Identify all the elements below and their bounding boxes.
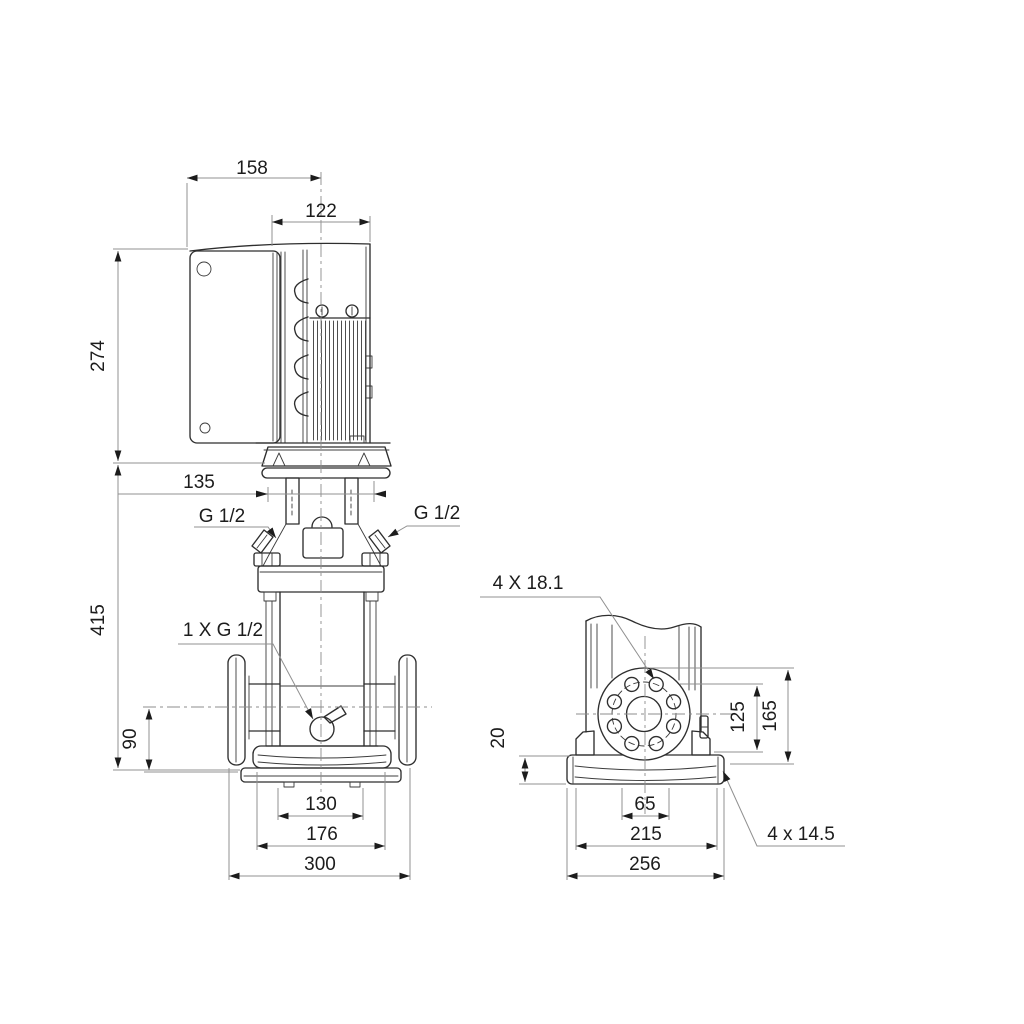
dim-274-label: 274 bbox=[88, 340, 109, 372]
front-view: 158 122 274 415 135 90 130 176 bbox=[88, 158, 460, 880]
dim-256-label: 256 bbox=[629, 854, 661, 875]
hex-nut-left bbox=[254, 553, 280, 566]
foot-right bbox=[692, 731, 710, 755]
base-holes-label: 4 x 14.5 bbox=[767, 824, 835, 845]
dim-125-label: 125 bbox=[728, 701, 749, 733]
pump-body-front bbox=[228, 592, 416, 765]
drawing-page: 158 122 274 415 135 90 130 176 bbox=[0, 0, 1024, 1024]
heatsink bbox=[310, 305, 372, 443]
port-flange-right bbox=[399, 655, 416, 765]
drain-plug bbox=[310, 717, 334, 741]
coupling-guard-left bbox=[286, 478, 299, 524]
dim-165-label: 165 bbox=[760, 700, 781, 732]
dim-65-label: 65 bbox=[634, 794, 655, 815]
dim-122-label: 122 bbox=[305, 201, 337, 222]
vent-left-label: G 1/2 bbox=[199, 506, 245, 527]
break-line bbox=[586, 615, 701, 629]
flange-holes-label: 4 X 18.1 bbox=[493, 573, 564, 594]
foot-left bbox=[576, 731, 594, 755]
dim-300-label: 300 bbox=[304, 854, 336, 875]
technical-drawing: 158 122 274 415 135 90 130 176 bbox=[0, 0, 1024, 1024]
side-view: 4 X 18.1 125 165 20 65 215 256 4 x 14.5 bbox=[480, 573, 845, 880]
motor-adapter bbox=[262, 447, 391, 478]
dim-176-label: 176 bbox=[306, 824, 338, 845]
vent-right-label: G 1/2 bbox=[414, 503, 460, 524]
terminal-box-screw-hole bbox=[200, 423, 210, 433]
dim-215-label: 215 bbox=[630, 824, 662, 845]
dim-20-label: 20 bbox=[488, 727, 509, 748]
motor-fins bbox=[295, 279, 308, 416]
coupling-access-plate bbox=[303, 528, 343, 558]
port-flange-left bbox=[228, 655, 245, 765]
dim-415-label: 415 bbox=[88, 604, 109, 636]
terminal-box-screw-hole bbox=[197, 262, 211, 276]
coupling-guard-right bbox=[345, 478, 358, 524]
drain-label: 1 X G 1/2 bbox=[183, 620, 263, 641]
dim-135-label: 135 bbox=[183, 472, 215, 493]
dimensions-front: 158 122 274 415 135 90 130 176 bbox=[88, 158, 460, 880]
dim-158-label: 158 bbox=[236, 158, 268, 179]
terminal-box bbox=[190, 251, 280, 443]
dim-130-label: 130 bbox=[305, 794, 337, 815]
motor-front bbox=[190, 243, 390, 443]
dim-90-label: 90 bbox=[120, 728, 141, 749]
